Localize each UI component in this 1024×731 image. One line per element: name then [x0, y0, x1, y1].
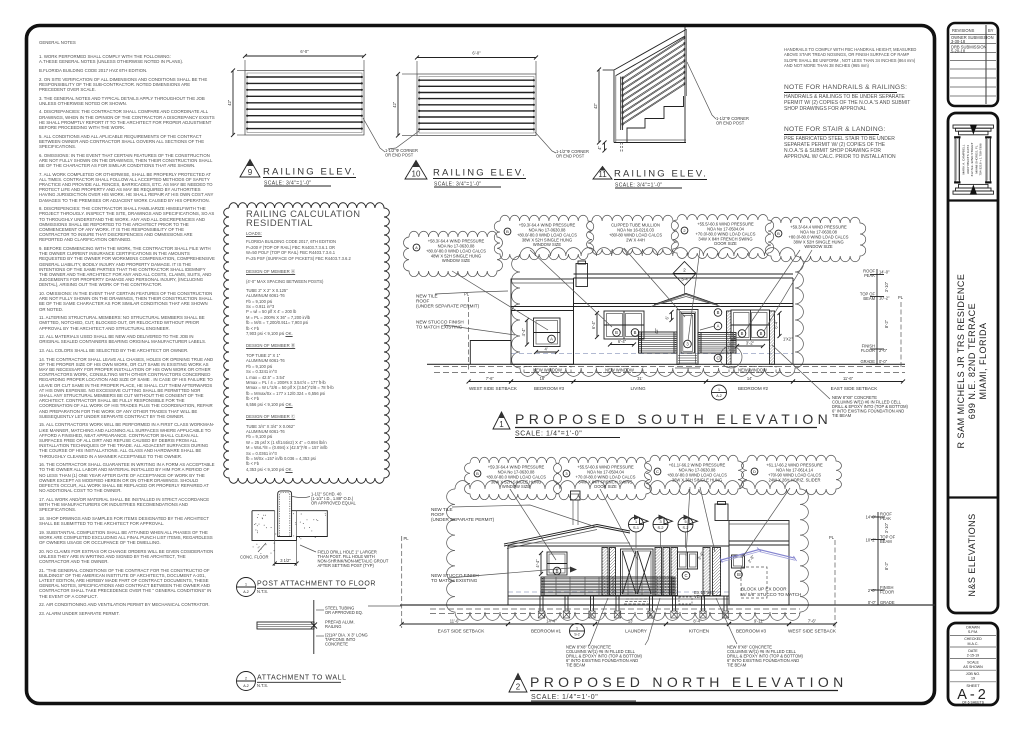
svg-text:14'-0": 14'-0" — [879, 270, 890, 275]
svg-text:B: B — [760, 331, 763, 336]
svg-text:OR END POST: OR END POST — [556, 154, 585, 159]
svg-text:GRADE: GRADE — [880, 600, 895, 605]
svg-text:BEAM: BEAM — [863, 296, 875, 301]
svg-text:EAST SIDE SETBACK: EAST SIDE SETBACK — [438, 629, 486, 634]
svg-text:7'-6": 7'-6" — [808, 618, 817, 623]
svg-text:42": 42" — [593, 102, 598, 109]
svg-text:CHECKED: CHECKED — [964, 637, 982, 641]
svg-text:TIE BEAM: TIE BEAM — [727, 663, 747, 668]
svg-text:3: 3 — [565, 471, 568, 476]
svg-text:13': 13' — [628, 618, 634, 623]
svg-text:1'X2": 1'X2" — [783, 337, 793, 342]
svg-text:CONCRETE: CONCRETE — [325, 642, 348, 647]
svg-text:RAILING ELEV.: RAILING ELEV. — [263, 167, 357, 178]
svg-text:OR END POST: OR END POST — [716, 121, 745, 126]
svg-text:14': 14' — [747, 376, 753, 381]
svg-text:NEW WINDOW: NEW WINDOW — [533, 367, 562, 372]
svg-text:3-30-18: 3-30-18 — [951, 39, 966, 44]
svg-text:N&S ELEVATIONS: N&S ELEVATIONS — [967, 513, 977, 596]
svg-text:11: 11 — [598, 170, 607, 179]
svg-text:2'-8": 2'-8" — [747, 554, 756, 564]
svg-text:VENT: VENT — [694, 594, 705, 599]
svg-text:DOOR SIZE: DOOR SIZE — [714, 241, 737, 246]
svg-text:SCALE: SCALE — [967, 660, 979, 664]
svg-text:0'-0": 0'-0" — [879, 359, 888, 364]
svg-text:42": 42" — [392, 101, 397, 108]
svg-text:EAST SIDE SETBACK: EAST SIDE SETBACK — [831, 386, 879, 391]
svg-text:RAILING ELEV.: RAILING ELEV. — [614, 169, 708, 180]
svg-text:MIAMI, FLORIDA: MIAMI, FLORIDA — [978, 322, 988, 399]
svg-text:2: 2 — [516, 683, 521, 692]
svg-text:4'-4": 4'-4" — [535, 559, 540, 568]
svg-text:7'-6": 7'-6" — [486, 376, 495, 381]
svg-text:1: 1 — [245, 583, 247, 587]
svg-text:11'-6": 11'-6" — [843, 376, 854, 381]
svg-text:B: B — [634, 330, 637, 335]
svg-text:2: 2 — [245, 677, 247, 681]
svg-text:BLOCK UP EX DOOR: BLOCK UP EX DOOR — [741, 587, 787, 592]
svg-text:6'-0": 6'-0" — [300, 49, 309, 54]
svg-text:10'-2": 10'-2" — [866, 538, 877, 543]
svg-text:TO MATCH EXISTING: TO MATCH EXISTING — [431, 578, 478, 583]
svg-text:PROPOSED NORTH ELEVATION: PROPOSED NORTH ELEVATION — [530, 674, 848, 690]
svg-text:42": 42" — [654, 327, 659, 334]
svg-text:DRAWN: DRAWN — [966, 626, 980, 630]
svg-text:24W X 26H HORIZ. SLIDER: 24W X 26H HORIZ. SLIDER — [769, 477, 821, 482]
svg-text:2'-0": 2'-0" — [868, 588, 877, 593]
svg-text:14'-4": 14'-4" — [546, 618, 557, 623]
svg-text:BEDROOM #2: BEDROOM #2 — [738, 386, 769, 391]
svg-text:36W X 36H SINGLE HUNG: 36W X 36H SINGLE HUNG — [672, 477, 722, 482]
svg-text:4": 4" — [597, 146, 602, 150]
svg-text:18': 18' — [540, 376, 546, 381]
svg-text:699 N.E. 82ND TERRACE: 699 N.E. 82ND TERRACE — [967, 303, 977, 419]
svg-text:10: 10 — [412, 170, 421, 179]
svg-text:PEAK: PEAK — [880, 516, 891, 521]
svg-text:2: 2 — [683, 268, 686, 273]
svg-text:6'-4": 6'-4" — [591, 320, 596, 329]
svg-text:BY: BY — [988, 28, 994, 33]
svg-text:S-1: S-1 — [633, 526, 639, 530]
svg-text:3 1/2": 3 1/2" — [280, 558, 291, 563]
svg-text:SCALE: 1/4"=1'-0": SCALE: 1/4"=1'-0" — [515, 431, 582, 438]
svg-text:C: C — [684, 573, 687, 578]
svg-text:3'-10": 3'-10" — [884, 522, 889, 533]
svg-text:FLOOR: FLOOR — [861, 348, 875, 353]
svg-text:1: 1 — [635, 520, 637, 524]
svg-text:RAILING: RAILING — [325, 624, 341, 629]
svg-text:BEAM: BEAM — [880, 539, 892, 544]
svg-text:BEDROOM #3: BEDROOM #3 — [736, 629, 767, 634]
svg-text:1: 1 — [499, 420, 504, 429]
svg-text:TIE BEAM: TIE BEAM — [566, 663, 586, 668]
svg-text:B: B — [476, 471, 479, 476]
svg-text:AFTER SETTING POST (TYP): AFTER SETTING POST (TYP) — [318, 563, 375, 568]
svg-text:8'-4": 8'-4" — [693, 618, 702, 623]
svg-text:PEAK: PEAK — [864, 273, 875, 278]
svg-text:RAILING ELEV.: RAILING ELEV. — [433, 168, 527, 179]
svg-text:1: 1 — [718, 388, 720, 392]
svg-text:1: 1 — [576, 627, 578, 631]
svg-text:DOOR SIZE: DOOR SIZE — [594, 484, 617, 489]
svg-text:9: 9 — [248, 168, 253, 177]
svg-text:OF 6 SHEETS: OF 6 SHEETS — [962, 701, 985, 705]
svg-text:A-2: A-2 — [716, 394, 722, 398]
svg-text:WINDOW SIZE: WINDOW SIZE — [502, 484, 530, 489]
svg-text:NEW WINDOW: NEW WINDOW — [605, 367, 634, 372]
svg-text:S-2: S-2 — [683, 526, 689, 530]
svg-text:PROPOSED SOUTH ELEVATION: PROPOSED SOUTH ELEVATION — [515, 411, 832, 427]
svg-text:B: B — [737, 572, 740, 577]
svg-text:(UNDER SEPARATE PERMIT): (UNDER SEPARATE PERMIT) — [416, 304, 480, 309]
svg-text:REVISIONS: REVISIONS — [952, 28, 975, 33]
svg-text:2W X 44H: 2W X 44H — [626, 237, 645, 242]
svg-text:WEST SIDE SETBACK: WEST SIDE SETBACK — [469, 386, 518, 391]
svg-text:OR APPROVED EQ.: OR APPROVED EQ. — [325, 610, 363, 615]
svg-text:WINDOW SIZE: WINDOW SIZE — [442, 258, 470, 263]
svg-text:5: 5 — [684, 520, 686, 524]
svg-text:LIVING: LIVING — [630, 386, 645, 391]
svg-text:R SAM MICHELS JR TRS RESI: R SAM MICHELS JR TRS RESIDENCE — [956, 274, 966, 449]
svg-text:S-2: S-2 — [658, 526, 664, 530]
svg-text:6'-4": 6'-4" — [774, 320, 779, 329]
svg-text:JOB NO.: JOB NO. — [966, 672, 980, 676]
svg-text:S.P.M.: S.P.M. — [968, 630, 978, 634]
svg-text:4': 4' — [544, 347, 547, 352]
svg-text:14'-0": 14'-0" — [866, 515, 877, 520]
svg-text:OR END POST: OR END POST — [385, 153, 414, 158]
svg-text:31': 31' — [637, 376, 643, 381]
svg-text:A-2: A-2 — [243, 684, 249, 688]
svg-text:BEDROOM #1: BEDROOM #1 — [531, 629, 562, 634]
svg-text:D: D — [753, 469, 756, 474]
svg-text:PL: PL — [829, 535, 835, 540]
svg-text:2: 2 — [683, 228, 686, 233]
svg-text:A: A — [717, 324, 720, 329]
svg-text:B: B — [615, 330, 618, 335]
svg-text:M.A.C.: M.A.C. — [968, 642, 979, 646]
svg-text:N.T.S.: N.T.S. — [257, 589, 268, 594]
svg-text:2'-0": 2'-0" — [879, 348, 888, 353]
svg-text:S-2: S-2 — [574, 633, 580, 637]
svg-text:WEST SIDE SETBACK: WEST SIDE SETBACK — [788, 629, 837, 634]
svg-text:8'-2": 8'-2" — [884, 561, 889, 570]
svg-text:0'-0": 0'-0" — [868, 600, 877, 605]
svg-text:B: B — [777, 231, 780, 236]
svg-text:19: 19 — [971, 677, 975, 681]
svg-text:6': 6' — [665, 316, 670, 319]
svg-text:POST ATTACHMENT TO FLOOR: POST ATTACHMENT TO FLOOR — [257, 581, 376, 588]
svg-text:3'-2": 3'-2" — [746, 341, 755, 346]
svg-text:S-4: S-4 — [681, 277, 688, 282]
svg-text:ATTACHMENT TO WALL: ATTACHMENT TO WALL — [257, 675, 347, 682]
svg-text:754-3218 + 1 758-7996: 754-3218 + 1 758-7996 — [979, 143, 983, 176]
svg-text:B: B — [717, 310, 720, 315]
svg-text:OR APPROVED EQUAL: OR APPROVED EQUAL — [311, 501, 357, 506]
svg-text:10'-2": 10'-2" — [879, 296, 890, 301]
svg-text:NEW WINDOW: NEW WINDOW — [738, 367, 767, 372]
svg-text:W/ 5/8" STUCCO TO MATCH: W/ 5/8" STUCCO TO MATCH — [741, 592, 801, 597]
svg-text:BEDROOM #3: BEDROOM #3 — [534, 386, 565, 391]
svg-text:LAUNDRY: LAUNDRY — [625, 629, 647, 634]
svg-text:C: C — [656, 469, 659, 474]
svg-text:42": 42" — [227, 99, 232, 106]
svg-text:A-2: A-2 — [243, 590, 249, 594]
svg-text:FLOOR: FLOOR — [880, 590, 894, 595]
svg-text:3'-10": 3'-10" — [884, 281, 889, 292]
svg-text:GRADE: GRADE — [860, 359, 875, 364]
svg-text:6'-4": 6'-4" — [618, 339, 627, 344]
svg-text:B: B — [741, 331, 744, 336]
svg-text:3: 3 — [686, 342, 689, 347]
svg-text:N.T.S.: N.T.S. — [257, 683, 268, 688]
svg-text:11'-6": 11'-6" — [450, 618, 461, 623]
svg-text:DATE: DATE — [968, 649, 978, 653]
svg-text:KITCHEN: KITCHEN — [689, 629, 709, 634]
svg-text:5-20-18: 5-20-18 — [951, 49, 966, 54]
svg-text:CONC. FLOOR: CONC. FLOOR — [240, 555, 268, 560]
svg-text:A: A — [415, 245, 418, 250]
svg-text:SCALE: 1/4"=1'-0": SCALE: 1/4"=1'-0" — [531, 694, 598, 701]
svg-text:3: 3 — [659, 520, 661, 524]
svg-text:8'-2": 8'-2" — [884, 319, 889, 328]
svg-text:9'-11": 9'-11" — [754, 618, 765, 623]
svg-text:PL: PL — [898, 295, 904, 300]
svg-text:A: A — [550, 337, 553, 342]
svg-text:AS SHOWN: AS SHOWN — [963, 665, 983, 669]
svg-text:4'-4": 4'-4" — [521, 328, 526, 337]
svg-text:WINDOW SIZE: WINDOW SIZE — [804, 244, 832, 249]
svg-text:WINDOW SIZE: WINDOW SIZE — [533, 242, 561, 247]
svg-text:2-15-19: 2-15-19 — [967, 653, 979, 657]
svg-text:B: B — [506, 229, 509, 234]
svg-text:6'-0": 6'-0" — [472, 51, 481, 56]
svg-text:(UNDER SEPARATE PERMIT): (UNDER SEPARATE PERMIT) — [431, 517, 495, 522]
svg-text:PL: PL — [404, 536, 410, 541]
svg-text:C: C — [716, 356, 719, 361]
svg-text:TIE BEAM: TIE BEAM — [832, 413, 852, 418]
